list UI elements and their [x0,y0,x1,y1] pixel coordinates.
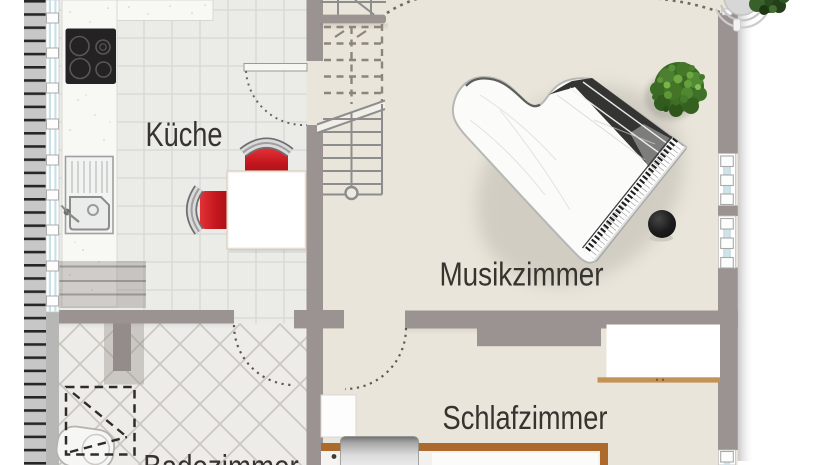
svg-text:Musikzimmer: Musikzimmer [439,256,603,293]
svg-text:Badezimmer: Badezimmer [143,449,299,465]
svg-text:Schlafzimmer: Schlafzimmer [443,401,608,437]
svg-text:Küche: Küche [145,115,222,154]
